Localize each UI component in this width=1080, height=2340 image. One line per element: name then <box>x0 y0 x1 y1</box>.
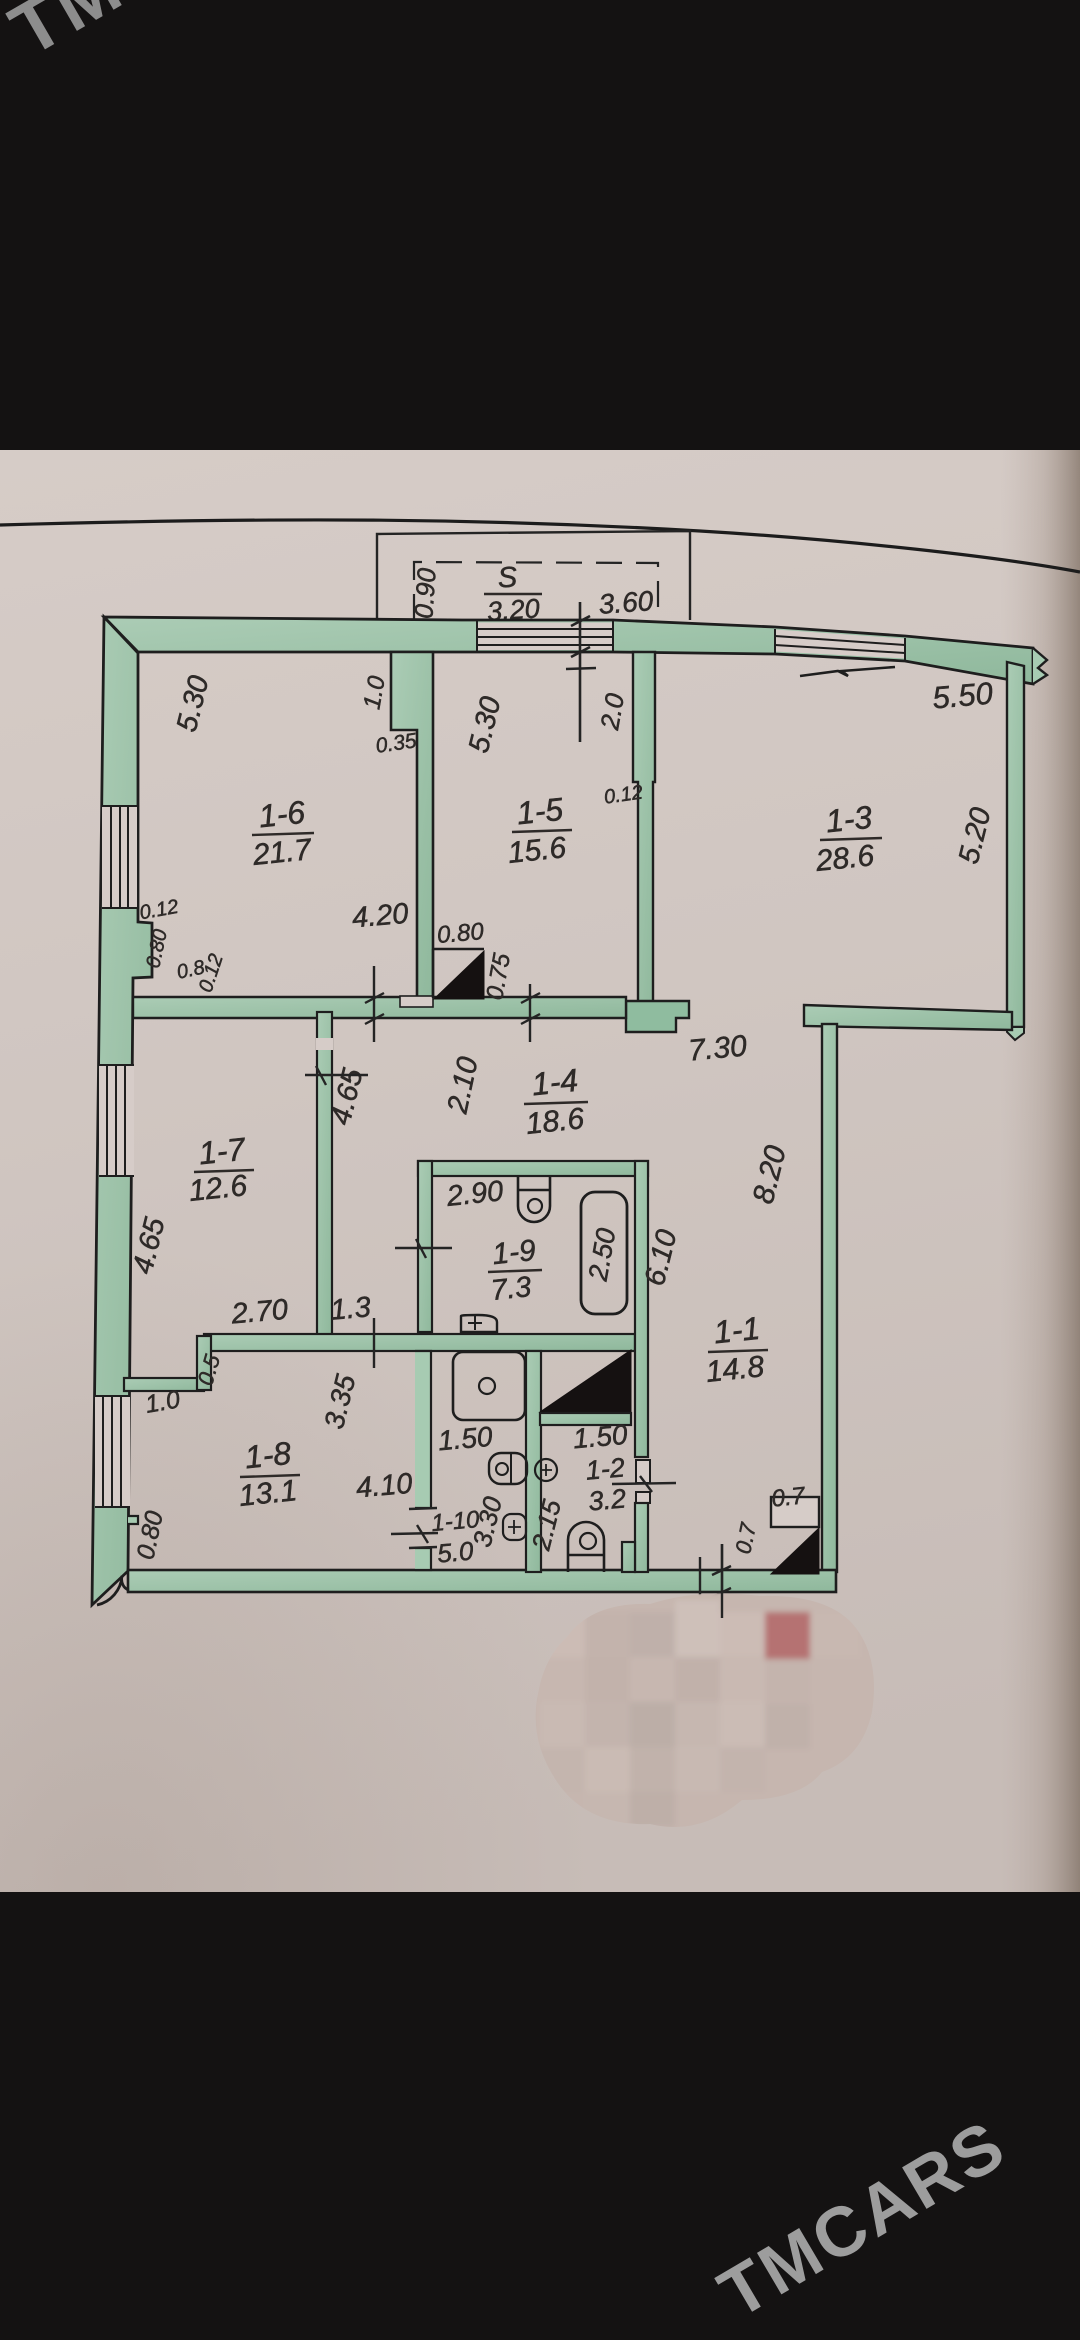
svg-text:14.8: 14.8 <box>704 1350 766 1389</box>
svg-text:2.90: 2.90 <box>444 1175 504 1213</box>
svg-text:4.20: 4.20 <box>351 898 410 935</box>
svg-text:0.90: 0.90 <box>408 567 441 620</box>
svg-text:1-3: 1-3 <box>824 799 874 840</box>
svg-text:21.7: 21.7 <box>250 833 314 872</box>
svg-text:0.80: 0.80 <box>436 918 486 949</box>
svg-text:1-5: 1-5 <box>515 791 565 832</box>
svg-text:1-4: 1-4 <box>530 1062 580 1103</box>
svg-text:0.7: 0.7 <box>770 1482 808 1513</box>
svg-text:4.10: 4.10 <box>355 1468 414 1505</box>
svg-text:1-6: 1-6 <box>257 794 307 835</box>
svg-text:1-9: 1-9 <box>491 1234 538 1271</box>
svg-text:28.6: 28.6 <box>813 839 876 878</box>
svg-text:12.6: 12.6 <box>187 1169 249 1208</box>
svg-text:18.6: 18.6 <box>524 1102 586 1141</box>
svg-text:3.2: 3.2 <box>587 1483 627 1516</box>
svg-text:5.50: 5.50 <box>931 675 994 715</box>
svg-text:1.0: 1.0 <box>143 1385 182 1419</box>
svg-text:13.1: 13.1 <box>237 1474 299 1513</box>
svg-text:1.50: 1.50 <box>437 1421 494 1457</box>
svg-text:7.30: 7.30 <box>687 1030 748 1068</box>
svg-text:1.3: 1.3 <box>329 1291 372 1326</box>
svg-text:15.6: 15.6 <box>506 831 568 870</box>
svg-text:1-7: 1-7 <box>197 1131 248 1172</box>
svg-text:S: S <box>497 561 519 594</box>
svg-text:1-2: 1-2 <box>584 1452 625 1485</box>
svg-text:3.60: 3.60 <box>598 585 655 620</box>
svg-text:1.50: 1.50 <box>572 1419 629 1455</box>
svg-text:1-8: 1-8 <box>243 1435 293 1476</box>
svg-text:7.3: 7.3 <box>489 1271 532 1307</box>
svg-text:1-1: 1-1 <box>712 1310 762 1351</box>
svg-text:2.70: 2.70 <box>229 1294 289 1331</box>
